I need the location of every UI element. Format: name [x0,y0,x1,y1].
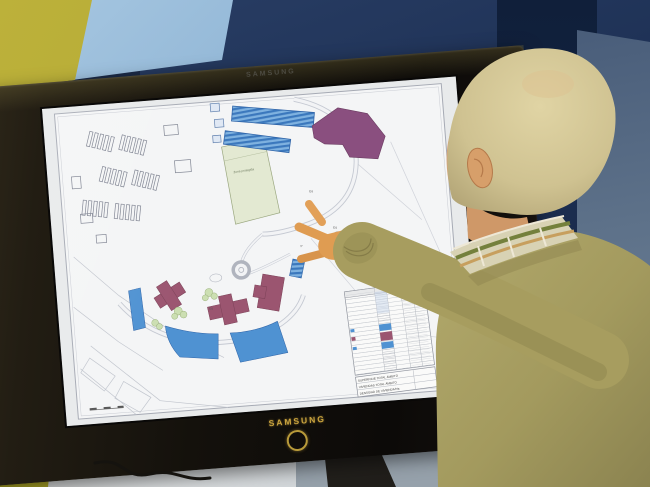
legend-cell-maroon [380,331,393,341]
photo-scene: SAMSUNG [0,0,650,487]
eq-label-2: Eq [333,225,337,229]
tv: SAMSUNG [0,45,555,487]
roundabout [233,261,250,278]
eq-label-3: Eq [209,306,213,310]
samsung-logo-bottom: SAMSUNG [252,412,343,429]
tv-screen: Zona protegida Eq Eq [42,76,481,426]
samsung-logo-top: SAMSUNG [221,66,321,81]
p-marker: P [300,244,302,248]
legend-table: SUPERFICIE TOTAL ÁMBITO VIVIENDAS TOTAL … [344,281,437,397]
eq-label-1: Eq [309,189,313,193]
site-plan-map: Zona protegida Eq Eq [42,76,481,426]
power-sensor-ring [286,429,309,452]
